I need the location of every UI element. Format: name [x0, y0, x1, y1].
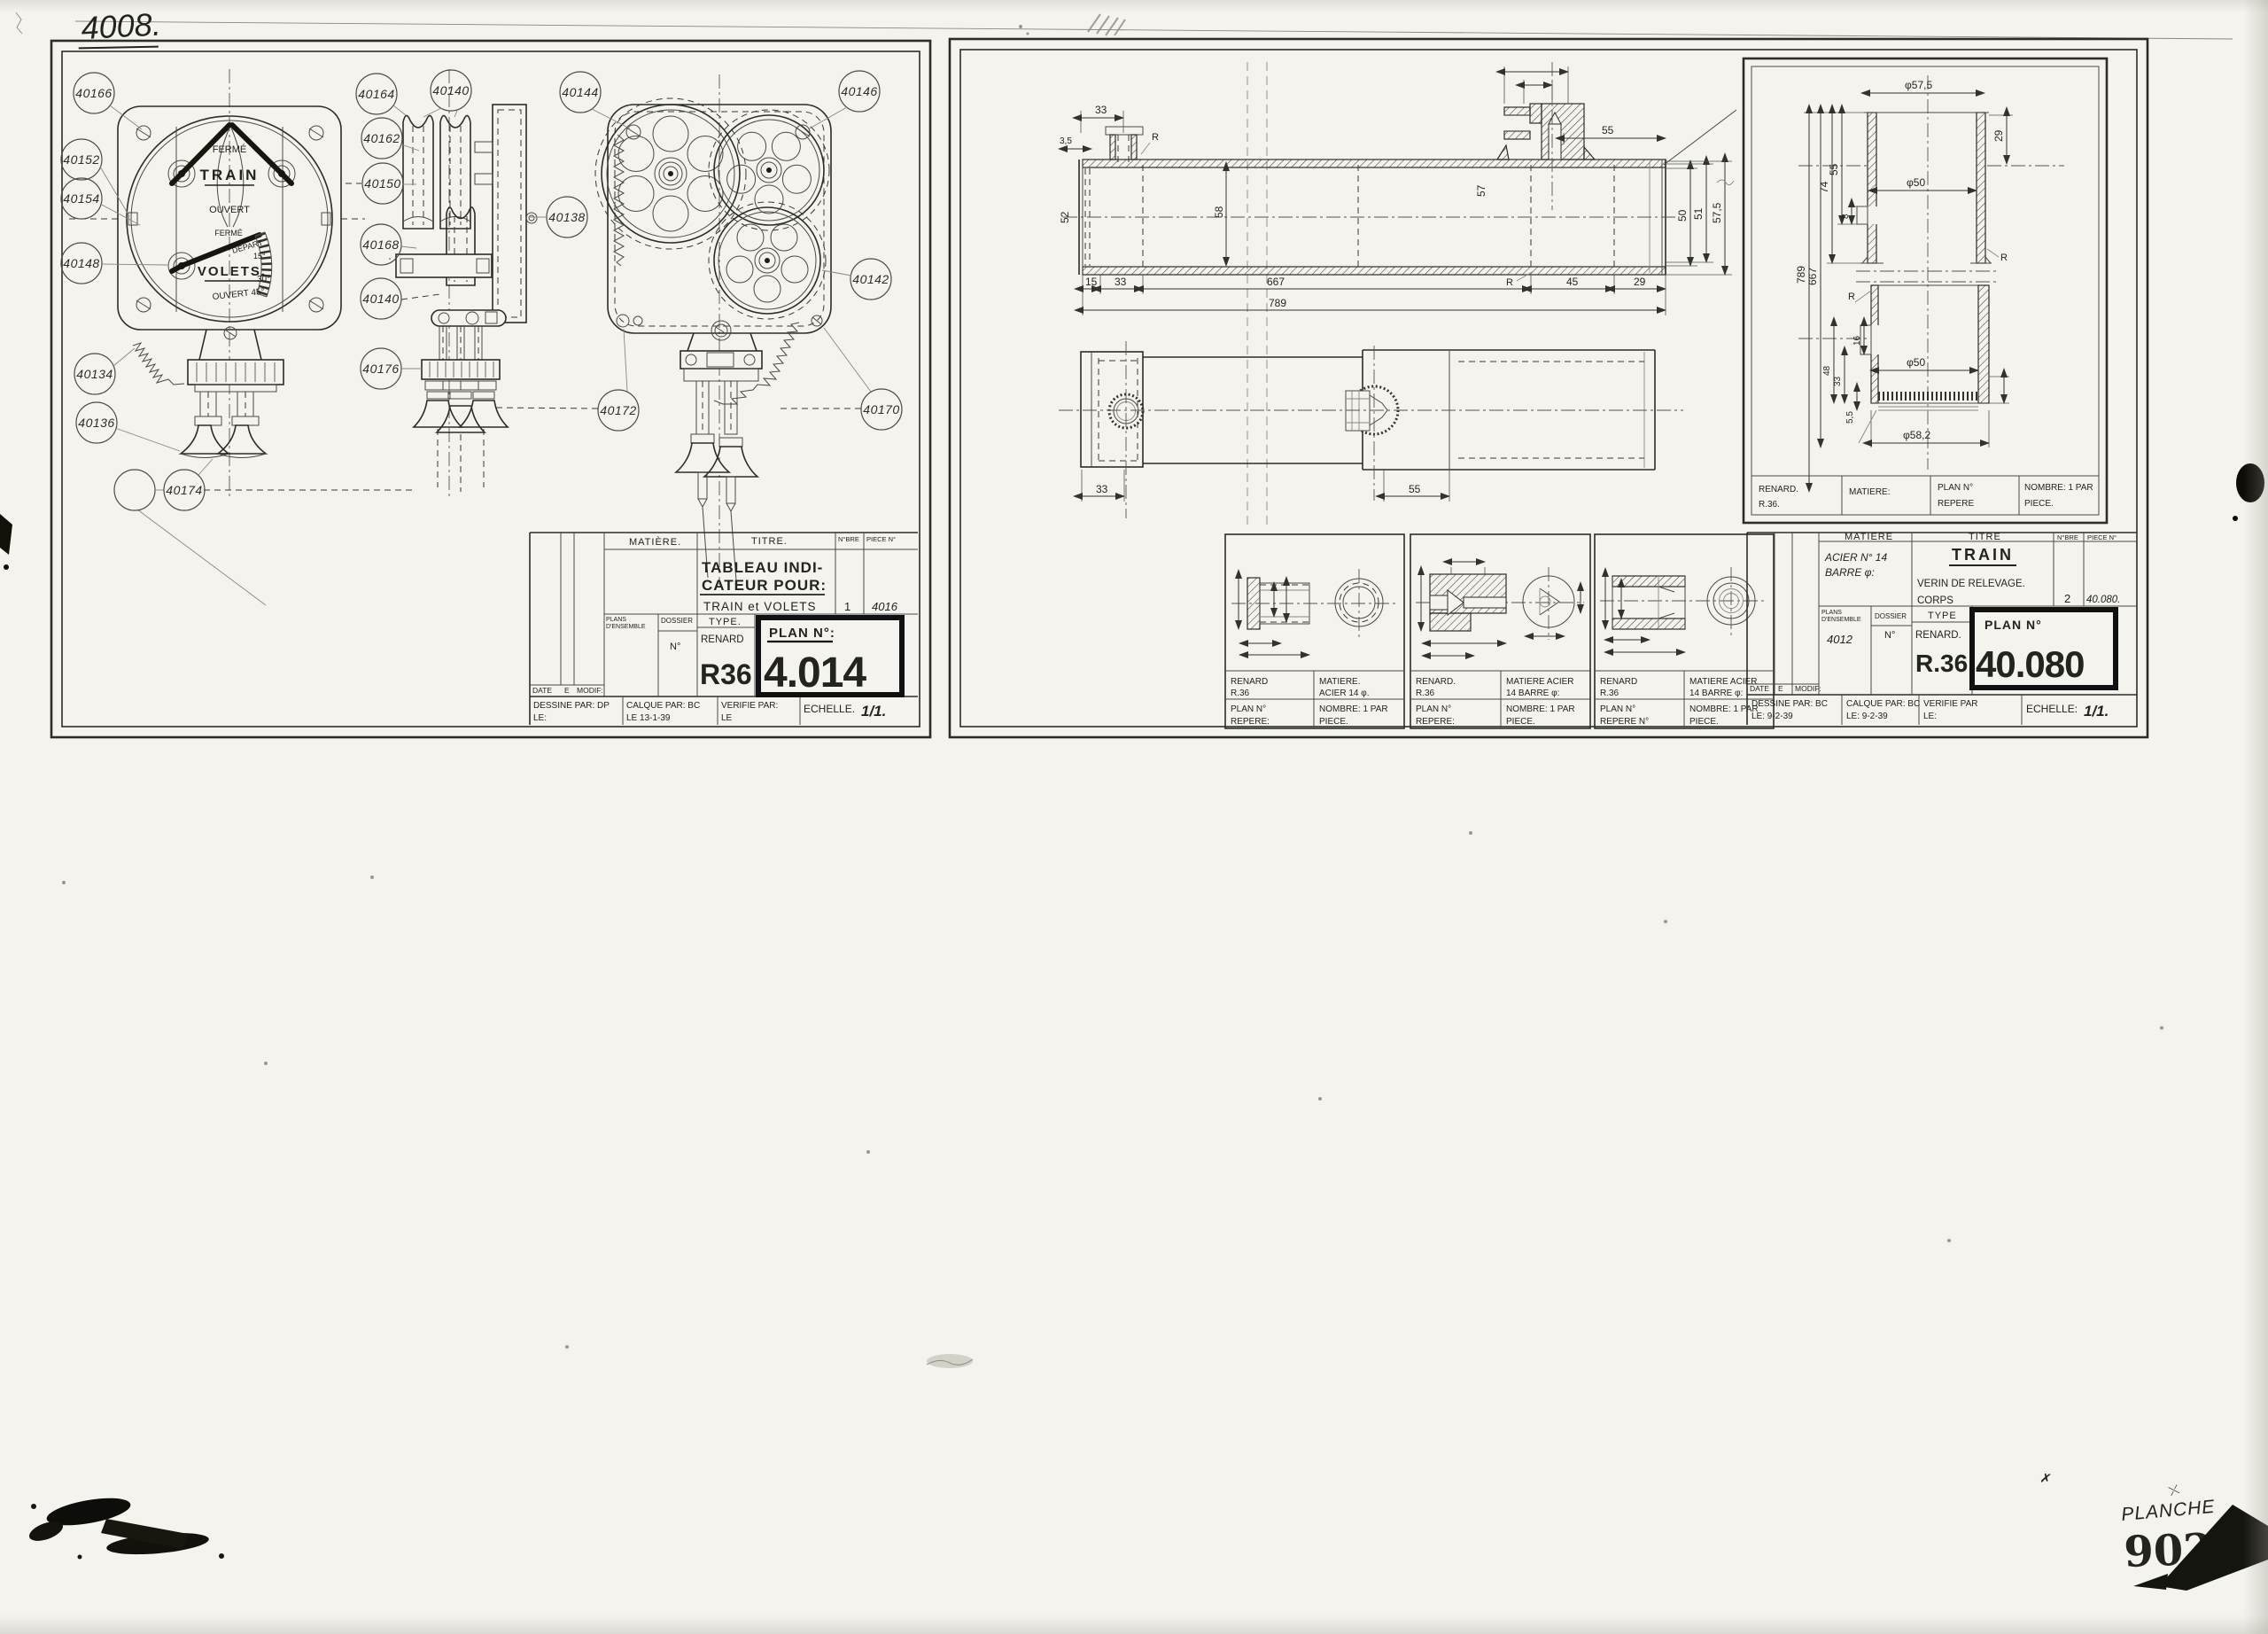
- r-date-label: DATE: [1750, 684, 1769, 693]
- r-dessine-le: LE: 9-2-39: [1751, 712, 1793, 721]
- type-value: RENARD: [701, 634, 744, 645]
- box2-code: R.36: [1416, 689, 1435, 698]
- scan-artifacts: ✗ ⤬: [0, 463, 2264, 1560]
- dim-33-side: 33: [1096, 483, 1108, 495]
- callout: 40172: [496, 329, 639, 431]
- r-type-code: R.36: [1915, 650, 1968, 677]
- r-matiere-line1: ACIER N° 14: [1824, 551, 1887, 564]
- callout: 40138: [529, 197, 587, 237]
- r-echelle-value: 1/1.: [2084, 703, 2109, 720]
- dim-51: 51: [1692, 207, 1705, 220]
- r-verifie-par: VERIFIE PAR: [1923, 699, 1978, 709]
- dim-15: 15: [1085, 276, 1098, 288]
- box2-renard: RENARD.: [1416, 677, 1456, 687]
- drawing-canvas: 4008.: [0, 0, 2268, 1634]
- piece-value: 4016: [872, 600, 898, 613]
- r-piece-header: PIECE N°: [2087, 533, 2117, 541]
- planche-stamp: PLANCHE 902: [2120, 1497, 2268, 1591]
- gear-large: [595, 98, 746, 249]
- r-plan-no-label: PLAN N°: [1984, 618, 2042, 632]
- plan-no-label: PLAN N°:: [769, 626, 835, 641]
- box3-nombre: NOMBRE: 1 PAR: [1689, 704, 1759, 714]
- callout: 40140: [423, 70, 471, 117]
- box1-renard: RENARD: [1231, 677, 1268, 687]
- callout-label: 40138: [548, 210, 585, 224]
- r-no-label: N°: [1884, 630, 1895, 641]
- nbre-header: N°BRE: [838, 535, 859, 543]
- r-e-label: E: [1778, 684, 1783, 693]
- detail-dim-16: 16: [1852, 335, 1862, 346]
- detail-dim-789: 789: [1795, 266, 1807, 284]
- detail-box-2: RENARD. R.36 MATIERE ACIER 14 BARRE φ: P…: [1410, 534, 1590, 728]
- callout-label: 40134: [76, 367, 113, 381]
- dial-30deg-label: 30°: [257, 275, 270, 284]
- callout: 40148: [61, 243, 167, 284]
- detail-dim-48: 48: [1822, 365, 1832, 376]
- callout: 40170: [780, 328, 902, 430]
- verifie-par: VERIFIE PAR:: [721, 701, 778, 711]
- r-plan-no-value: 40.080: [1976, 643, 2084, 685]
- end-detail-panel: φ57,5 29 φ50 789 667 74 55 8 R R 16: [1744, 58, 2107, 523]
- dim-58: 58: [1213, 206, 1225, 218]
- box3-plan: PLAN N°: [1600, 704, 1635, 714]
- box1-piece: PIECE.: [1319, 717, 1348, 727]
- box3-matiere2: 14 BARRE φ:: [1689, 689, 1743, 698]
- r-matiere-header: MATIERE: [1845, 532, 1893, 542]
- r-plans-label1: PLANS: [1821, 610, 1842, 616]
- sheet-top-border: [16, 12, 2233, 39]
- callout-label: 40148: [63, 256, 99, 270]
- plan-no-value: 4.014: [764, 650, 866, 696]
- type-code: R36: [700, 658, 752, 690]
- callout-label: 40176: [362, 362, 399, 376]
- r-dessine-par: DESSINE PAR: BC: [1751, 699, 1828, 709]
- r-plans-label2: D'ENSEMBLE: [1821, 617, 1861, 623]
- callout-label: 40154: [63, 191, 99, 206]
- dessine-par: DESSINE PAR: DP: [533, 701, 610, 711]
- right-panel: 33 3,5 R 55 52 58 57 50 51 57,5 15: [950, 39, 2148, 737]
- box3-repere: REPERE N°: [1600, 717, 1649, 727]
- callout: 40176: [361, 348, 422, 389]
- piece-header: PIECE N°: [866, 535, 896, 543]
- callout-label: 40136: [78, 416, 114, 430]
- r-titre-sub2: CORPS: [1917, 595, 1953, 606]
- strip-piece: PIECE.: [2024, 499, 2054, 509]
- box2-nombre: NOMBRE: 1 PAR: [1506, 704, 1575, 714]
- callout: 40136: [76, 402, 180, 451]
- callout-label: 40162: [363, 131, 400, 145]
- callout: 40150: [346, 163, 416, 204]
- box1-matiere2: ACIER 14 φ.: [1319, 689, 1370, 698]
- callout-label: 40142: [852, 272, 889, 286]
- detail-dim-8: 8: [1841, 214, 1851, 219]
- callout-label: 40152: [63, 152, 99, 167]
- dial-ferme-low-label: FERMÉ: [214, 229, 243, 237]
- planche-label: PLANCHE: [2120, 1497, 2216, 1525]
- cylinder-section-view: 33 3,5 R 55 52 58 57 50 51 57,5 15: [1059, 62, 1736, 315]
- titre-header: TITRE.: [751, 536, 788, 547]
- radius-label-1: R: [1152, 132, 1159, 143]
- r-type-label: TYPE: [1928, 611, 1957, 621]
- strip-renard: RENARD.: [1759, 485, 1798, 494]
- callout-label: 40140: [362, 292, 399, 306]
- detail-dim-57-5: φ57,5: [1905, 79, 1932, 91]
- callout: 40164: [356, 74, 406, 115]
- dim-50: 50: [1676, 209, 1689, 222]
- dial-15deg-label: 15°: [253, 252, 266, 261]
- box2-matiere2: 14 BARRE φ:: [1506, 689, 1559, 698]
- part-callouts: 40166 40152 40154 40148 40134 40136 4017…: [61, 70, 902, 510]
- front-spring: [133, 343, 184, 385]
- detail-dim-50b: φ50: [1907, 356, 1925, 369]
- scanned-drawing-sheet: 4008.: [0, 0, 2268, 1634]
- strip-matiere: MATIERE:: [1849, 487, 1890, 497]
- dim-33: 33: [1095, 104, 1107, 116]
- no-label: N°: [670, 642, 680, 652]
- callout-label: 40174: [166, 483, 202, 497]
- box2-piece: PIECE.: [1506, 717, 1535, 727]
- detail-radius-1: R: [2000, 253, 2008, 263]
- cable-lines: [439, 326, 482, 360]
- type-label: TYPE.: [709, 617, 742, 627]
- dim-55-side: 55: [1409, 483, 1421, 495]
- dossier-label: DOSSIER: [661, 617, 693, 625]
- echelle-label: ECHELLE.: [804, 703, 855, 715]
- svg-text:⤬: ⤬: [2167, 1482, 2181, 1498]
- detail-dim-33: 33: [1833, 376, 1843, 386]
- dim-52: 52: [1059, 211, 1071, 223]
- side-view-pulley-stack: [390, 105, 537, 492]
- box2-matiere1: MATIERE ACIER: [1506, 677, 1574, 687]
- box1-code: R.36: [1231, 689, 1250, 698]
- box3-piece: PIECE.: [1689, 717, 1719, 727]
- box1-matiere1: MATIERE.: [1319, 677, 1360, 687]
- callout-label: 40172: [600, 403, 636, 417]
- r-modif-label: MODIF:: [1795, 684, 1821, 693]
- callout-label: 40170: [863, 402, 899, 416]
- detail-dim-58-2: φ58,2: [1903, 429, 1930, 441]
- matiere-header: MATIÈRE.: [629, 536, 681, 548]
- detail-dim-5-5: 5,5: [1845, 411, 1855, 424]
- r-calque-par: CALQUE PAR: BC: [1846, 699, 1920, 709]
- callout: 40146: [808, 71, 880, 129]
- r-matiere-line2: BARRE φ:: [1825, 566, 1875, 579]
- r-calque-le: LE: 9-2-39: [1846, 712, 1888, 721]
- box3-renard: RENARD: [1600, 677, 1637, 687]
- dim-45: 45: [1566, 276, 1579, 288]
- dim-33b: 33: [1115, 276, 1127, 288]
- dim-57-5: 57,5: [1711, 202, 1723, 223]
- strip-nombre: NOMBRE: 1 PAR: [2024, 483, 2093, 493]
- callout-label: 40144: [562, 85, 598, 99]
- left-title-block: MATIÈRE. TITRE. N°BRE PIECE N° TABLEAU I…: [530, 533, 918, 725]
- title-line2: CATEUR POUR:: [702, 577, 827, 594]
- box2-repere: REPERE:: [1416, 717, 1455, 727]
- r-echelle-label: ECHELLE:: [2026, 703, 2078, 715]
- dial-train-label: TRAIN: [200, 167, 260, 183]
- box1-plan: PLAN N°: [1231, 704, 1266, 714]
- radius-label-2: R: [1506, 277, 1513, 288]
- r-plans-value: 4012: [1827, 633, 1853, 646]
- cylinder-side-view: 33 55: [1059, 341, 1683, 518]
- left-panel: FERMÉ TRAIN OUVERT FERMÉ VOLETS. DEPART …: [51, 41, 930, 737]
- callout: 40134: [74, 348, 135, 394]
- dim-667: 667: [1267, 276, 1285, 288]
- rear-view-gear-train: [595, 98, 831, 580]
- title-line1: TABLEAU INDI-: [702, 559, 823, 576]
- callout-label: 40164: [358, 87, 394, 101]
- detail-dim-29: 29: [1992, 129, 2005, 142]
- date-label: DATE: [532, 686, 552, 695]
- r-nbre-header: N°BRE: [2057, 533, 2078, 541]
- plans-label2: D'ENSEMBLE: [606, 624, 646, 630]
- callout: 40174: [164, 459, 213, 510]
- strip-plan: PLAN N°: [1938, 483, 1973, 493]
- box1-nombre: NOMBRE: 1 PAR: [1319, 704, 1388, 714]
- dim-57: 57: [1475, 184, 1487, 197]
- callout-label: 40140: [432, 83, 469, 97]
- detail-radius-2: R: [1848, 292, 1855, 302]
- callout-label: 40150: [364, 176, 400, 191]
- detail-box-1: RENARD R.36 MATIERE. ACIER 14 φ. PLAN N°…: [1225, 534, 1404, 728]
- top-center-hatch-mark: [1088, 14, 1125, 35]
- detail-dim-50a: φ50: [1907, 176, 1925, 189]
- r-nbre-value: 2: [2064, 592, 2070, 605]
- dim-789: 789: [1269, 297, 1286, 309]
- front-view-cable-bracket: [181, 327, 283, 458]
- title-line3: TRAIN et VOLETS: [703, 600, 817, 613]
- dessine-le: LE:: [533, 713, 547, 723]
- nbre-value: 1: [844, 600, 850, 613]
- dim-29: 29: [1634, 276, 1646, 288]
- top-right-fitting: [1497, 62, 1595, 210]
- echelle-value: 1/1.: [861, 703, 886, 720]
- sheet-number: 4008.: [76, 5, 161, 51]
- dial-ferme-top-label: FERMÉ: [213, 144, 247, 155]
- calque-par: CALQUE PAR: BC: [626, 701, 700, 711]
- detail-dim-74: 74: [1818, 181, 1830, 193]
- strip-repere: REPERE: [1938, 499, 1974, 509]
- r-dossier-label: DOSSIER: [1875, 612, 1907, 620]
- callout-label: 40168: [362, 237, 399, 252]
- r-piece-value: 40.080.: [2086, 595, 2120, 605]
- gear-lower-right: [709, 202, 826, 319]
- callout: 40166: [74, 73, 142, 129]
- r-titre-sub1: VERIN DE RELEVAGE.: [1917, 579, 2025, 589]
- modif-label: MODIF:: [577, 686, 603, 695]
- dim-3-5: 3,5: [1060, 136, 1072, 146]
- svg-text:✗: ✗: [2039, 1470, 2053, 1487]
- box3-code: R.36: [1600, 689, 1619, 698]
- calque-le: LE 13-1-39: [626, 713, 671, 723]
- callout: 40162: [361, 118, 419, 159]
- right-title-block: MATIERE TITRE N°BRE PIECE N° ACIER N° 14…: [1747, 532, 2137, 725]
- callout: 40142: [822, 259, 891, 300]
- box2-plan: PLAN N°: [1416, 704, 1451, 714]
- detail-dim-667: 667: [1806, 268, 1819, 285]
- callout: 40140: [361, 278, 440, 319]
- r-verifie-le: LE:: [1923, 712, 1937, 721]
- strip-code: R.36.: [1759, 500, 1780, 510]
- callout: [114, 470, 164, 510]
- plans-label: PLANS: [606, 617, 626, 623]
- r-type-value: RENARD.: [1915, 630, 1961, 641]
- callout-label: 40146: [841, 84, 877, 98]
- dial-ouvert-label: OUVERT: [209, 205, 250, 215]
- e-label: E: [564, 686, 570, 695]
- r-titre-header: TITRE: [1969, 532, 2001, 542]
- box1-repere: REPERE:: [1231, 717, 1270, 727]
- dim-55: 55: [1602, 124, 1614, 136]
- dial-ouvert45-label: OUVERT 45°: [212, 287, 265, 302]
- detail-dim-55: 55: [1828, 163, 1840, 175]
- verifie-le: LE: [721, 713, 733, 723]
- r-titre-main: TRAIN: [1952, 546, 2014, 564]
- callout-label: 40166: [75, 86, 112, 100]
